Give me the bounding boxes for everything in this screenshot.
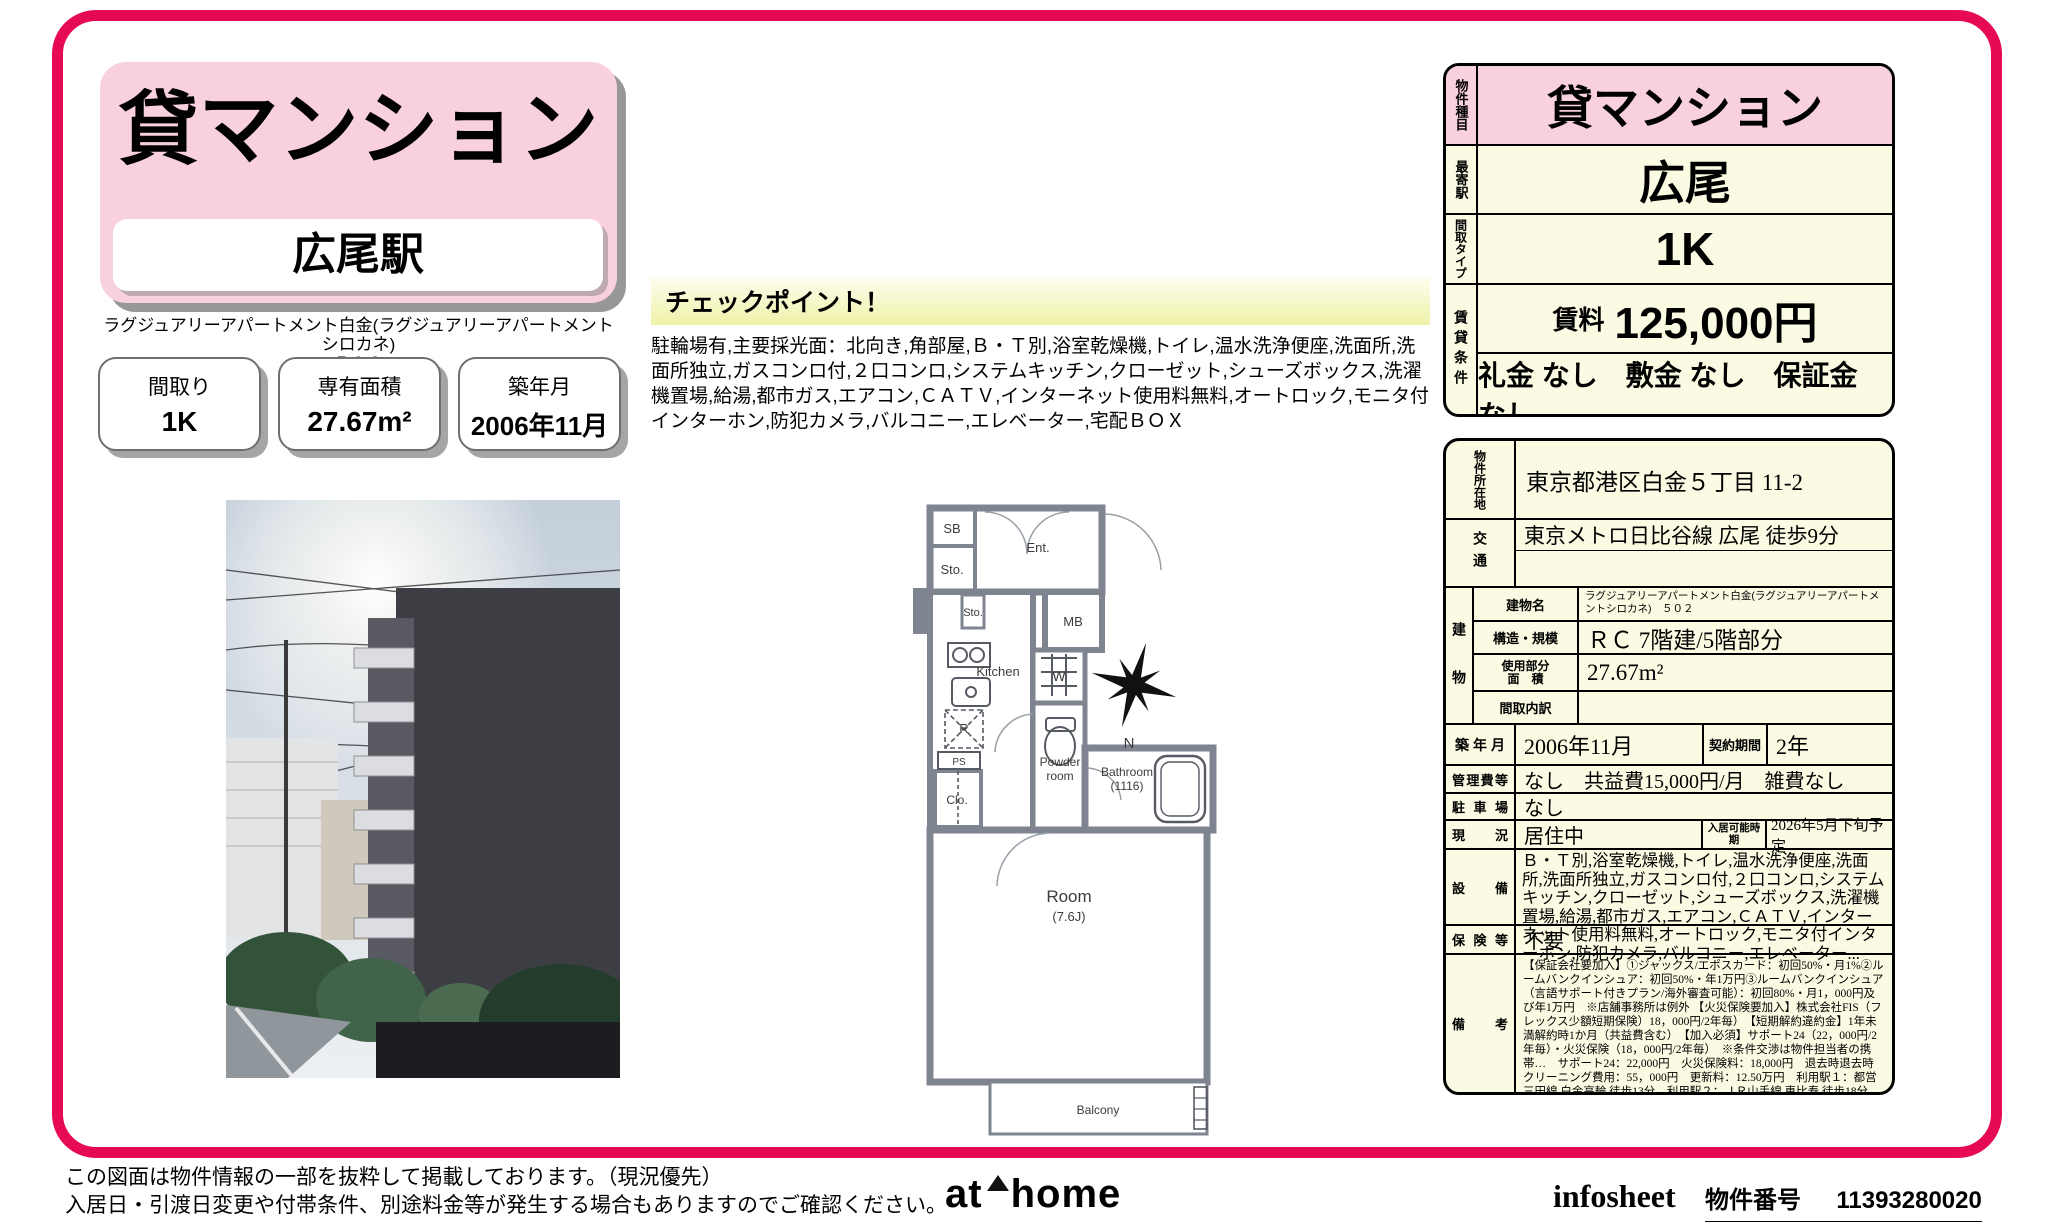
row-property-type-label: 物件種目 — [1452, 79, 1471, 131]
row-location: 物件所在地 東京都港区白金５丁目 11-2 — [1446, 441, 1892, 520]
row-equipment-value: Ｂ・Ｔ別,浴室乾燥機,トイレ,温水洗浄便座,洗面所,洗面所独立,ガスコンロ付,２… — [1516, 850, 1892, 924]
fp-label-powder2: room — [1046, 769, 1073, 783]
row-station-value: 広尾 — [1478, 146, 1892, 213]
row-built-value: 2006年11月 — [1516, 725, 1704, 764]
property-number-value: 11393280020 — [1836, 1187, 1982, 1214]
row-remarks: 備 考 【保証会社要加入】①ジャックス/エポスカード：初回50%・月1%②ルーム… — [1446, 955, 1892, 1092]
detail-table: 物件所在地 東京都港区白金５丁目 11-2 交通 東京メトロ日比谷線 広尾 徒歩… — [1443, 438, 1895, 1095]
checkpoint-section: チェックポイント！ 駐輪場有,主要採光面：北向き,角部屋,Ｂ・Ｔ別,浴室乾燥機,… — [651, 277, 1430, 434]
area-label-line1: 使用部分 — [1501, 660, 1549, 673]
property-number: 物件番号 11393280020 — [1705, 1180, 1982, 1222]
athome-caret-icon — [987, 1175, 1009, 1191]
infosheet-page: 貸マンション 広尾駅 ラグジュアリーアパートメント白金(ラグジュアリーアパートメ… — [0, 0, 2056, 1222]
badge-area: 専有面積 27.67m² — [278, 357, 441, 451]
property-name-line1: ラグジュアリーアパートメント白金(ラグジュアリーアパートメントシロカネ) — [100, 316, 617, 354]
fp-label-sb: SB — [943, 521, 960, 536]
row-insurance-label: 保険等 — [1452, 930, 1508, 949]
fp-label-kitchen: Kitchen — [976, 664, 1019, 679]
row-status: 現 況 居住中 入居可能時期 2026年5月下旬予定 — [1446, 821, 1892, 850]
badge-area-value: 27.67m² — [280, 406, 439, 438]
layout-detail-label: 間取内訳 — [1474, 692, 1579, 723]
structure-value: ＲＣ 7階建/5階部分 — [1579, 622, 1892, 653]
property-photo — [226, 500, 620, 1078]
row-status-value: 居住中 — [1516, 821, 1703, 848]
fp-label-sto2: Sto. — [963, 607, 983, 619]
fp-label-bath2: (1116) — [1111, 779, 1144, 793]
row-remarks-value: 【保証会社要加入】①ジャックス/エポスカード：初回50%・月1%②ルームバンクイ… — [1516, 955, 1892, 1092]
fp-label-sto1: Sto. — [940, 562, 963, 577]
row-status-label: 現 況 — [1452, 825, 1508, 844]
badge-built: 築年月 2006年11月 — [458, 357, 621, 451]
fp-label-refrigerator: R — [959, 721, 968, 736]
athome-logo-at: at — [945, 1172, 983, 1217]
contract-value: 2年 — [1768, 725, 1892, 764]
row-access-label: 交通 — [1470, 531, 1490, 575]
row-built: 築年月 2006年11月 契約期間 2年 — [1446, 725, 1892, 766]
fp-label-balcony: Balcony — [1077, 1103, 1120, 1117]
summary-table: 物件種目 貸マンション 最寄駅 広尾 間取タイプ 1K 賃貸条件 賃料 125,… — [1443, 63, 1895, 417]
row-building-label: 建物 — [1449, 594, 1469, 718]
building-name-label: 建物名 — [1474, 588, 1579, 620]
row-insurance-value: 不要 — [1516, 926, 1892, 953]
row-parking-label: 駐車場 — [1452, 797, 1508, 816]
rent-value: 125,000円 — [1614, 287, 1817, 351]
row-rental-terms: 賃貸条件 賃料 125,000円 礼金 なし 敷金 なし 保証金 なし — [1446, 285, 1892, 414]
row-station: 最寄駅 広尾 — [1446, 146, 1892, 215]
movein-label: 入居可能時期 — [1703, 821, 1767, 848]
fp-label-room2: (7.6J) — [1052, 909, 1085, 924]
fp-label-bath1: Bathroom — [1101, 765, 1153, 779]
fp-label-north: N — [1124, 735, 1135, 752]
fp-label-room1: Room — [1046, 887, 1091, 906]
row-remarks-label: 備 考 — [1452, 1014, 1508, 1033]
terms-value: 礼金 なし 敷金 なし 保証金 なし — [1478, 354, 1892, 417]
floor-plan: SB Sto. Ent. Sto. MB Kitchen W R PS Clo.… — [905, 500, 1250, 1140]
badge-layout: 間取り 1K — [98, 357, 261, 451]
row-location-label: 物件所在地 — [1472, 450, 1489, 510]
footer-disclaimer-line2: 入居日・引渡日変更や付帯条件、別途料金等が発生する場合もありますのでご確認くださ… — [65, 1192, 947, 1220]
badge-built-label: 築年月 — [460, 371, 619, 401]
row-access-value: 東京メトロ日比谷線 広尾 徒歩9分 — [1516, 520, 1892, 551]
badge-layout-value: 1K — [100, 406, 259, 438]
fp-label-washer: W — [1052, 668, 1066, 684]
row-layout-type-label: 間取タイプ — [1453, 219, 1470, 279]
row-mgmt: 管理費等 なし 共益費15,000円/月 雑費なし — [1446, 766, 1892, 794]
title-card: 貸マンション 広尾駅 — [100, 62, 617, 303]
area-label-line2: 面 積 — [1507, 673, 1543, 686]
row-property-type-value: 貸マンション — [1478, 66, 1892, 144]
fp-label-closet: Clo. — [946, 793, 967, 807]
row-mgmt-label: 管理費等 — [1452, 770, 1508, 789]
row-location-value: 東京都港区白金５丁目 11-2 — [1516, 441, 1892, 518]
row-access: 交通 東京メトロ日比谷線 広尾 徒歩9分 — [1446, 520, 1892, 588]
row-station-label: 最寄駅 — [1452, 160, 1471, 199]
badge-area-label: 専有面積 — [280, 371, 439, 401]
fp-label-mb: MB — [1063, 614, 1083, 629]
row-property-type: 物件種目 貸マンション — [1446, 66, 1892, 146]
property-number-label: 物件番号 — [1705, 1187, 1801, 1214]
property-type-title: 貸マンション — [100, 86, 617, 174]
structure-label: 構造・規模 — [1474, 622, 1579, 653]
row-layout-type-value: 1K — [1478, 215, 1892, 283]
row-building: 建物 建物名 ラグジュアリーアパートメント白金(ラグジュアリーアパートメントシロ… — [1446, 588, 1892, 725]
area-value: 27.67m² — [1579, 655, 1892, 690]
contract-label: 契約期間 — [1704, 725, 1768, 764]
row-insurance: 保険等 不要 — [1446, 926, 1892, 955]
rent-label: 賃料 — [1552, 300, 1604, 337]
checkpoint-title: チェックポイント！ — [651, 277, 1430, 325]
infosheet-wordmark: infosheet — [1553, 1178, 1676, 1215]
row-mgmt-value: なし 共益費15,000円/月 雑費なし — [1516, 766, 1892, 792]
fp-label-powder1: Powder — [1040, 755, 1081, 769]
fp-label-ps: PS — [952, 757, 966, 768]
checkpoint-body: 駐輪場有,主要採光面：北向き,角部屋,Ｂ・Ｔ別,浴室乾燥機,トイレ,温水洗浄便座… — [651, 334, 1430, 434]
nearest-station-box: 広尾駅 — [113, 219, 603, 291]
building-name-value: ラグジュアリーアパートメント白金(ラグジュアリーアパートメントシロカネ) ５０２ — [1579, 588, 1892, 620]
footer-disclaimer-line1: この図面は物件情報の一部を抜粋して掲載しております。（現況優先） — [65, 1164, 947, 1192]
athome-logo-home: home — [1011, 1172, 1122, 1217]
row-built-label: 築年月 — [1455, 735, 1505, 755]
row-access-empty — [1516, 551, 1892, 586]
movein-value: 2026年5月下旬予定 — [1767, 821, 1892, 848]
layout-detail-value — [1579, 692, 1892, 723]
footer-disclaimer: この図面は物件情報の一部を抜粋して掲載しております。（現況優先） 入居日・引渡日… — [65, 1164, 947, 1220]
fp-label-ent: Ent. — [1026, 540, 1049, 555]
badge-built-value: 2006年11月 — [460, 406, 619, 443]
row-rental-terms-label: 賃貸条件 — [1451, 310, 1471, 390]
wall-notch — [913, 588, 930, 634]
row-equipment-label: 設 備 — [1452, 878, 1508, 897]
row-equipment: 設 備 Ｂ・Ｔ別,浴室乾燥機,トイレ,温水洗浄便座,洗面所,洗面所独立,ガスコン… — [1446, 850, 1892, 926]
athome-logo: at home — [945, 1172, 1121, 1217]
row-layout-type: 間取タイプ 1K — [1446, 215, 1892, 285]
badge-layout-label: 間取り — [100, 371, 259, 401]
